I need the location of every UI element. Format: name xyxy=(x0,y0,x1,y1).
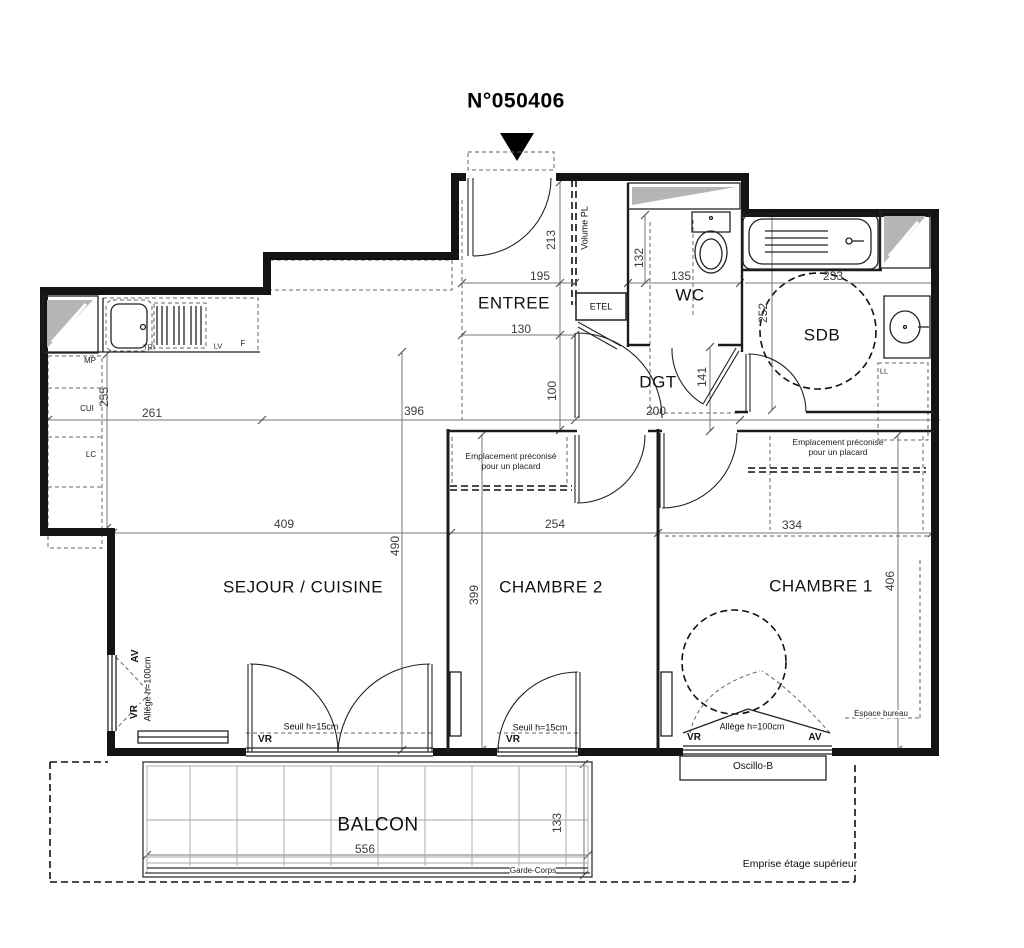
placard-label-chambre2: Emplacement préconisé pour un placard xyxy=(459,451,563,471)
dim-chambre2-height: 399 xyxy=(468,585,480,605)
dim-sejour-height: 490 xyxy=(389,536,401,556)
dim-balcon-width: 556 xyxy=(355,843,375,855)
lc-label: LC xyxy=(86,451,96,459)
espace-bureau-label: Espace bureau xyxy=(854,710,908,718)
oscillo-b-label: Oscillo-B xyxy=(733,762,773,772)
fridge-label: F xyxy=(241,340,246,348)
radiators xyxy=(138,672,672,743)
allege-label-chambre1: Allège h=100cm xyxy=(720,723,785,732)
placard-label-chambre1: Emplacement préconisé pour un placard xyxy=(786,437,890,457)
dashed-annotations xyxy=(48,152,928,882)
dim-chambre1-height: 406 xyxy=(884,571,896,591)
windows xyxy=(108,655,832,780)
emprise-label: Emprise étage supérieur xyxy=(743,859,857,870)
room-label-chambre2: CHAMBRE 2 xyxy=(499,579,603,596)
etel-closet-label: ETEL xyxy=(590,303,613,312)
dim-dgt-width: 200 xyxy=(646,405,666,417)
dim-dgt-height: 141 xyxy=(696,367,708,387)
ll-label: LL xyxy=(880,367,888,375)
vr-label-sejour: VR xyxy=(257,735,273,745)
technical-shafts xyxy=(43,183,930,353)
dim-sdb-height: 252 xyxy=(757,303,769,323)
entrance-marker-icon xyxy=(500,133,534,161)
mp-label: MP xyxy=(84,357,96,365)
av-label-chambre1: AV xyxy=(807,733,822,743)
lv-label: LV xyxy=(214,342,223,350)
plan-title: N°050406 xyxy=(467,91,565,112)
dim-cuisine-height: 255 xyxy=(98,387,110,407)
dishwasher-rack xyxy=(157,306,201,345)
dim-wc-height: 132 xyxy=(633,248,645,268)
dim-balcon-depth: 133 xyxy=(551,813,563,833)
room-label-entree: ENTREE xyxy=(478,295,550,312)
room-label-sejour: SEJOUR / CUISINE xyxy=(223,579,383,596)
dim-chambre1-width: 334 xyxy=(782,519,802,531)
dim-chambre2-width: 254 xyxy=(545,518,565,530)
vr-label-chambre1: VR xyxy=(686,733,702,743)
room-label-chambre1: CHAMBRE 1 xyxy=(769,578,873,595)
dimension-lines xyxy=(44,178,940,879)
room-label-balcon: BALCON xyxy=(337,816,418,835)
cui-label: CUI xyxy=(80,405,94,413)
dim-sdb-width: 233 xyxy=(823,270,843,282)
vr-label-chambre2: VR xyxy=(505,735,521,745)
allege-label-sejour: Allège h=100cm xyxy=(144,657,153,722)
room-label-dgt: DGT xyxy=(639,374,676,391)
dim-sejour-width: 409 xyxy=(274,518,294,530)
seuil-label-chambre2: Seuil h=15cm xyxy=(513,724,568,733)
dim-entree-width: 195 xyxy=(530,270,550,282)
dim-wc-width: 135 xyxy=(671,270,691,282)
room-label-sdb: SDB xyxy=(804,327,840,344)
washbasin xyxy=(884,296,930,358)
vr-label-sejour-west: VR xyxy=(130,704,140,720)
bathtub xyxy=(743,214,878,269)
dim-entree-depth: 130 xyxy=(511,323,531,335)
room-label-wc: WC xyxy=(675,287,704,304)
dim-sejour-top-width: 396 xyxy=(404,405,424,417)
tri-label: TRI xyxy=(143,343,155,351)
seuil-label-sejour: Seuil h=15cm xyxy=(284,723,339,732)
dim-entree-height: 213 xyxy=(545,230,557,250)
toilet xyxy=(692,212,730,273)
av-label-sejour: AV xyxy=(131,648,141,663)
volume-pl-label: Volume PL xyxy=(581,206,590,250)
dim-cuisine-width: 261 xyxy=(142,407,162,419)
floor-plan: N°050406 ENTREE WC SDB DGT SEJOUR / CUIS… xyxy=(0,0,1024,948)
garde-corps-label: Garde-Corps xyxy=(510,867,556,875)
dim-dgt-offset: 100 xyxy=(546,381,558,401)
floor-plan-drawing xyxy=(0,0,1024,948)
